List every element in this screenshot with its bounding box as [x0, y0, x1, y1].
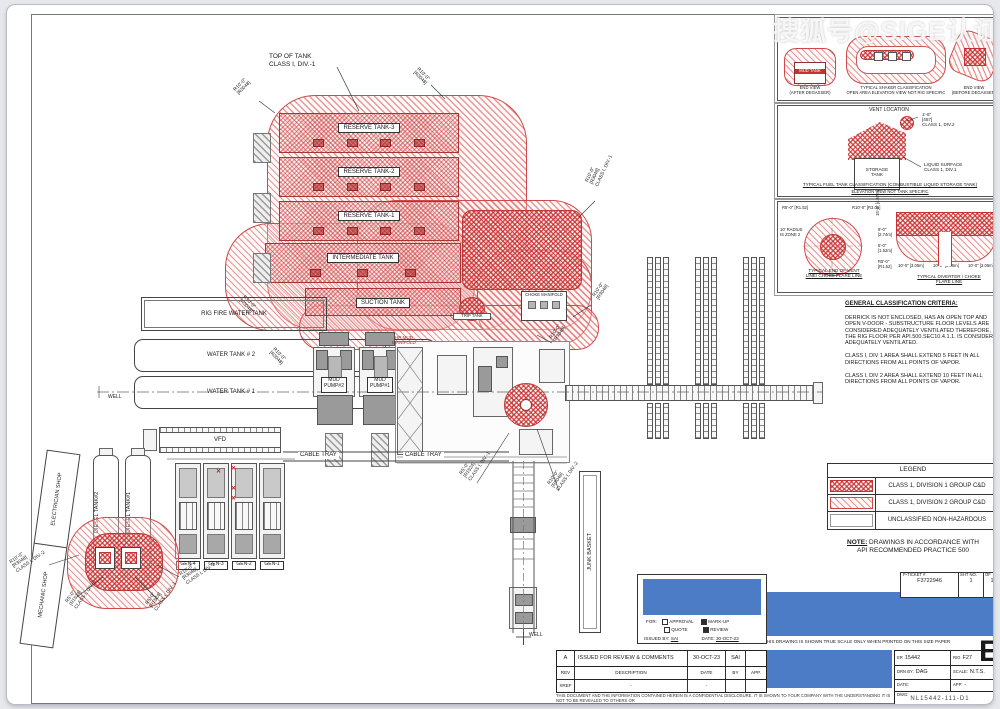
note-text: DRAWINGS IN ACCORDANCE WITH	[867, 539, 979, 546]
gen-part	[263, 468, 281, 498]
er-value: 15442	[905, 655, 920, 661]
well-centerline-label-left: WELL	[107, 395, 123, 401]
detail-panel-fuel-tank: VENT LOCATION STORAGE TANK 1'-6" [457] C…	[777, 105, 994, 197]
date-label: DATE:	[897, 683, 909, 688]
xref-app	[746, 680, 766, 692]
water-tank-2-label: WATER TANK # 2	[207, 352, 255, 359]
er-cell: ER 15442	[895, 651, 951, 665]
gen-part	[179, 468, 197, 498]
rev-letter: A	[557, 651, 575, 666]
catwalk-end	[813, 382, 823, 404]
substructure-part	[478, 366, 492, 392]
pipe-rack	[695, 257, 701, 385]
diverter-dim-15: 15'-0" [4.57m]	[876, 190, 881, 216]
water-tank-1-label: WATER TANK # 1	[207, 389, 255, 396]
tank-fitting	[347, 139, 358, 147]
drn-value: DAG	[916, 669, 928, 675]
pump-part	[362, 350, 374, 370]
stamp-date-value: 30-OCT-23	[716, 636, 739, 641]
vent-end-inner-circle	[820, 234, 846, 260]
drn-cell: DRN BY: DAG	[895, 666, 951, 679]
sheet-size-letter: E	[979, 635, 994, 669]
intermediate-tank: INTERMEDIATE TANK	[265, 243, 461, 283]
criteria-paragraph: CLASS I, DIV 1 AREA SHALL EXTEND 5 FEET …	[845, 353, 994, 366]
vfd-ticks	[160, 447, 280, 452]
stamp-date-label: DATE:	[702, 636, 715, 641]
gen-part	[263, 502, 281, 530]
app-value: -	[965, 682, 967, 688]
legend-label: UNCLASSIFIED NON-HAZARDOUS	[876, 512, 994, 529]
shaker-unit	[888, 52, 897, 61]
title-line: LINE/ CHOKE FLARE LINE	[786, 273, 882, 278]
vfd-label: VFD	[160, 437, 280, 444]
pipe-rack	[663, 403, 669, 439]
end-view-after-caption: END VIEW (AFTER DEGASSER)	[780, 86, 840, 95]
legend-swatch-none	[830, 514, 873, 527]
generator-3	[203, 463, 229, 559]
pipe-rack	[655, 403, 661, 439]
xref-by	[726, 680, 746, 692]
diesel-vent-box	[95, 547, 115, 569]
vfd-ticks	[160, 428, 280, 433]
tank-fitting	[347, 183, 358, 191]
title-line: FLARE LINE	[900, 279, 994, 284]
of-value: 1	[984, 578, 994, 584]
revision-table: A ISSUED FOR REVIEW & COMMENTS 30-OCT-23…	[556, 650, 767, 693]
markup-option-label: MARK-UP	[708, 619, 729, 624]
substructure-module	[539, 349, 565, 383]
shaker-right-inner	[964, 48, 986, 66]
criteria-paragraph: DERRICK IS NOT ENCLOSED, HAS AN OPEN TOP…	[845, 315, 994, 347]
pipe-rack	[751, 257, 757, 385]
pticket-value: F3722946	[901, 578, 958, 584]
legend-row-unclassified: UNCLASSIFIED NON-HAZARDOUS	[828, 512, 994, 529]
flare-marker-icon: ✕	[216, 469, 221, 475]
diverter-dim-10: 10'-0" [3.05m]	[898, 264, 924, 269]
diverter-title: TYPICAL DIVERTER / CHOKE FLARE LINE	[900, 274, 994, 284]
pipe-rack	[695, 403, 701, 439]
pipe-rack	[655, 257, 661, 385]
redacted-title-block	[764, 592, 994, 636]
sht-cell: SHT NO. 1	[959, 573, 984, 597]
approval-options-2: QUOTE REVIEW	[664, 627, 774, 633]
note-line2: API RECOMMENDED PRACTICE 500	[817, 547, 994, 555]
gen-part	[207, 534, 225, 554]
checkbox-quote	[664, 627, 670, 633]
pump-part	[316, 350, 328, 370]
rig-label: RIG	[953, 656, 960, 661]
mud-pump-1-skid	[363, 395, 399, 425]
mud-tank-box: MUD TANK	[794, 62, 826, 84]
rev-header-by: BY	[726, 667, 746, 679]
substructure-module	[437, 355, 467, 395]
watermark: 搜狐号@SIGE认证 /M	[773, 11, 994, 48]
cable-tray-label: CABLE TRAY	[298, 452, 339, 459]
diesel-vent-hatch	[125, 552, 137, 564]
gen-part	[235, 502, 253, 530]
hazard-zone-div1-rigfloor	[462, 210, 582, 290]
dim-line: [1.52m]	[878, 249, 892, 254]
reserve-tank-3-label: RESERVE TANK-3	[338, 123, 399, 133]
gen-part	[207, 502, 225, 530]
diverter-dim-5: 5'-0"[1.52m]	[878, 244, 892, 253]
issued-by-value: SAI	[671, 636, 678, 641]
reserve-tank-1-label: RESERVE TANK-1	[338, 211, 399, 221]
caption-line: (BEFORE DEGASSER)	[946, 91, 994, 96]
mud-tank-label: MUD TANK	[795, 69, 825, 74]
mechanic-shop-label: MECHANIC SHOP	[37, 571, 50, 618]
caption-line: OPEN AREA ELEVATION VIEW NOT RIG SPECIFI…	[840, 91, 952, 96]
well-centerline-label-bottom: WELL	[529, 633, 543, 639]
vent-end-title: TYPICAL END OF VENT LINE/ CHOKE FLARE LI…	[786, 268, 882, 278]
tank-fitting	[380, 227, 391, 235]
quote-option-label: QUOTE	[671, 627, 687, 632]
er-label: ER	[897, 656, 903, 661]
gen-part	[235, 534, 253, 554]
flare-marker-icon: ✕	[231, 496, 236, 502]
criteria-heading: GENERAL CLASSIFICATION CRITERIA:	[845, 301, 994, 308]
diverter-dim-9: 9'-0"[2.74m]	[878, 228, 892, 237]
diverter-dim-10: 10'-0" [3.05m]	[968, 264, 994, 269]
pipe-rack	[711, 403, 717, 439]
date-cell: DATE:	[895, 680, 951, 691]
redacted-logo-block	[643, 579, 761, 615]
rev-row-3: XREF - -	[557, 680, 766, 692]
tank-stair	[253, 133, 271, 163]
pipe-rack	[759, 403, 765, 439]
rig-fire-water-tank-inner: RIG FIRE WATER TANK	[144, 300, 324, 328]
legend-swatch-cell	[828, 495, 876, 511]
legend-row-div1: CLASS 1, DIVISION 1 GROUP C&D	[828, 478, 994, 495]
substructure-module	[519, 429, 553, 455]
junk-basket-label: JUNK BASKET	[587, 533, 593, 571]
skid-part	[515, 594, 533, 606]
tank-fitting	[313, 139, 324, 147]
choke-manifold: CHOKE MANIFOLD	[521, 291, 567, 321]
cable-tray-label: CABLE TRAY	[403, 452, 444, 459]
generator-1	[259, 463, 285, 559]
checkbox-markup	[701, 619, 707, 625]
mud-pump-2-skid	[317, 395, 353, 425]
legend-swatch-div1	[830, 480, 873, 492]
rev-description: ISSUED FOR REVIEW & COMMENTS	[575, 651, 688, 666]
pipe-rack	[743, 403, 749, 439]
pticket-box: P-TICKET # F3722946 SHT NO. 1 OF 1	[900, 572, 994, 598]
pump-label-line: PUMP#1	[368, 384, 392, 390]
rev-row-2: REV DESCRIPTION DATE BY APP.	[557, 667, 766, 680]
pipe-rack	[711, 257, 717, 385]
approval-stamp: FOR: APPROVAL MARK-UP QUOTE REVIEW ISSUE…	[637, 574, 767, 644]
legend-label: CLASS 1, DIVISION 1 GROUP C&D	[876, 478, 994, 494]
rev-by: SAI	[726, 651, 746, 666]
manifold-valve	[552, 301, 560, 309]
tank-fitting	[414, 139, 425, 147]
choke-manifold-label: CHOKE MANIFOLD	[522, 293, 566, 298]
mud-pump-1-pedestal	[371, 433, 389, 467]
xref-date: -	[688, 680, 726, 692]
rig-fire-water-tank-label: RIG FIRE WATER TANK	[201, 311, 267, 318]
wellhead-skid	[509, 587, 537, 629]
checkbox-review	[703, 627, 709, 633]
checkbox-approval	[662, 619, 668, 625]
rev-row-1: A ISSUED FOR REVIEW & COMMENTS 30-OCT-23…	[557, 651, 766, 667]
pipe-rack	[703, 403, 709, 439]
manifold-valve	[528, 301, 536, 309]
note-label: NOTE:	[847, 539, 867, 546]
fuel-detail-title: TYPICAL FUEL TANK CLASSIFICATION (COMBUS…	[780, 182, 994, 187]
pipe-rack	[663, 257, 669, 385]
issued-by-label: ISSUED BY:	[644, 636, 670, 641]
fuel-detail-subtitle: ELEVATION VIEW NOT TANK SPECIFIC	[780, 190, 994, 195]
redacted-company-block	[762, 650, 892, 688]
review-option-label: REVIEW	[710, 627, 728, 632]
vent-dim-label: 1'-6" [457] CLASS 1, DIV.2	[922, 112, 955, 127]
rig-fire-water-tank: RIG FIRE WATER TANK	[141, 297, 327, 331]
sht-value: 1	[959, 578, 983, 584]
flare-marker-icon: ✕	[231, 466, 236, 472]
tank-fitting	[380, 183, 391, 191]
suction-tank-label: SUCTION TANK	[356, 298, 410, 308]
liquid-surface-label: LIQUID SURFACE CLASS 1, DIV.1	[924, 162, 962, 172]
dwg-number: NL15442-111-D1	[910, 696, 969, 705]
diesel-vent-box	[121, 547, 141, 569]
flare-marker-icon: ✕	[231, 486, 236, 492]
pipe-rack	[647, 403, 653, 439]
tank-fitting	[357, 269, 368, 277]
gen-part	[235, 468, 253, 498]
legend-swatch-cell	[828, 512, 876, 529]
legend-note: NOTE: DRAWINGS IN ACCORDANCE WITH API RE…	[817, 539, 994, 555]
diesel-vent-hatch	[99, 552, 111, 564]
dim-line: CLASS 1, DIV.2	[922, 122, 955, 127]
shaker-unit	[902, 52, 911, 61]
tank-fitting	[414, 227, 425, 235]
for-label: FOR:	[646, 619, 657, 624]
legend-swatch-div2	[830, 497, 873, 509]
info-row-3: DATE: APP: -	[895, 680, 994, 692]
skid-part	[515, 612, 533, 624]
substructure-leg	[397, 347, 423, 455]
vfd-house: VFD	[159, 427, 281, 453]
of-cell: OF 1	[984, 573, 994, 597]
true-scale-note: THIS DRAWING IS SHOWN TRUE SCALE ONLY WH…	[764, 639, 994, 644]
app-label: APP:	[953, 683, 963, 688]
pipe-rack	[703, 257, 709, 385]
reserve-tank-3: RESERVE TANK-3	[279, 113, 459, 153]
approval-option-label: APPROVAL	[669, 619, 693, 624]
shaker-unit	[874, 52, 883, 61]
zone-line: IS ZONE 2	[780, 233, 806, 238]
rev-header-app: APP.	[746, 667, 766, 679]
diverter-pipe	[938, 232, 952, 266]
scale-value: N.T.S.	[970, 669, 985, 675]
fuel-vent-circle	[900, 116, 914, 130]
trip-tank-label: TRIP TANK	[453, 313, 491, 320]
legend-row-div2: CLASS 1, DIVISION 2 GROUP C&D	[828, 495, 994, 512]
dim-line: [R1.52]	[878, 265, 892, 270]
legend-label: CLASS 1, DIVISION 2 GROUP C&D	[876, 495, 994, 511]
diverter-dim-r5: R5'-0"[R1.52]	[878, 260, 892, 269]
mud-pump-2-label: MUD PUMP#2	[321, 377, 347, 393]
approval-options: FOR: APPROVAL MARK-UP	[646, 619, 762, 625]
vent-location-label: VENT LOCATION	[778, 108, 994, 114]
legend-title: LEGEND	[828, 464, 994, 478]
reserve-tank-1: RESERVE TANK-1	[279, 201, 459, 241]
generator-4	[175, 463, 201, 559]
gen-part	[263, 534, 281, 554]
pipe-rack	[751, 403, 757, 439]
tank-stair	[253, 253, 271, 283]
tank-fitting	[313, 183, 324, 191]
catwalk	[565, 385, 819, 401]
shaker-mid-caption: TYPICAL SHAKER CLASSIFICATION OPEN AREA …	[840, 86, 952, 95]
callout-line: CLASS I, DIV.-1	[269, 61, 315, 69]
scale-label: SCALE:	[953, 670, 968, 675]
callout-line: TOP OF TANK	[269, 53, 315, 61]
detail-panel-flare: R5'-0" [R1.52] R10'-0" [R3.05] 10' RADIU…	[777, 201, 994, 293]
electrician-shop-label: ELECTRICIAN SHOP	[50, 472, 64, 526]
rev-app	[746, 651, 766, 666]
flare-r5-label: R5'-0" [R1.52]	[782, 206, 808, 211]
xref-label: XREF	[557, 680, 575, 692]
tank-fitting	[414, 183, 425, 191]
reserve-tank-2-label: RESERVE TANK-2	[338, 167, 399, 177]
pipe-rack	[743, 257, 749, 385]
mud-pump-2-top	[319, 332, 349, 346]
pticket-cell: P-TICKET # F3722946	[901, 573, 959, 597]
gen-part	[179, 502, 197, 530]
legend-swatch-cell	[828, 478, 876, 494]
vfd-attachment	[143, 429, 157, 451]
gen-part	[179, 534, 197, 554]
pipe-rack	[647, 257, 653, 385]
app-cell: APP: -	[951, 680, 994, 691]
junk-basket-inner: JUNK BASKET	[583, 475, 597, 629]
rig-value: F27	[962, 655, 971, 661]
drn-label: DRN BY:	[897, 670, 914, 675]
xref-value: -	[575, 680, 688, 692]
storage-line: TANK	[855, 172, 899, 177]
gen-1-label: GEN-1	[260, 561, 284, 570]
legend: LEGEND CLASS 1, DIVISION 1 GROUP C&D CLA…	[827, 463, 994, 530]
generator-2	[231, 463, 257, 559]
rev-header-date: DATE	[688, 667, 726, 679]
tank-fitting	[380, 139, 391, 147]
criteria-paragraph: CLASS I, DIV 2 AREA SHALL EXTEND 10 FEET…	[845, 373, 994, 386]
hp-mud-manifold-label: HP MUD MANIFOLD	[383, 335, 425, 345]
mud-pump-2-pedestal	[325, 433, 343, 467]
top-of-tank-callout: TOP OF TANK CLASS I, DIV.-1	[269, 53, 315, 69]
pipe-rack	[759, 257, 765, 385]
drawing-sheet: RESERVE TANK-3 RESERVE TANK-2 RESERVE TA…	[6, 4, 994, 705]
junk-basket: JUNK BASKET	[579, 471, 601, 633]
hp-mud-line: MANIFOLD	[383, 340, 425, 345]
reserve-tank-2: RESERVE TANK-2	[279, 157, 459, 197]
info-row-4: DWG: NL15442-111-D1	[895, 692, 994, 705]
mud-pump-1-label: MUD PUMP#1	[367, 377, 393, 393]
fuel-vapor-roof	[848, 122, 906, 160]
tank-fitting	[405, 269, 416, 277]
tank-fitting	[313, 227, 324, 235]
confidentiality-note: THIS DOCUMENT AND THE INFORMATION CONTAI…	[556, 694, 898, 703]
tank-fitting	[310, 269, 321, 277]
classification-criteria: GENERAL CLASSIFICATION CRITERIA: DERRICK…	[845, 301, 994, 386]
rev-header-rev: REV	[557, 667, 575, 679]
rev-date: 30-OCT-23	[688, 651, 726, 666]
tank-fitting	[347, 227, 358, 235]
manifold-valve	[540, 301, 548, 309]
intermediate-tank-label: INTERMEDIATE TANK	[327, 253, 398, 263]
end-view-before-caption: END VIEW (BEFORE DEGASSER)	[946, 86, 994, 95]
dim-line: [2.74m]	[878, 233, 892, 238]
caption-line: (AFTER DEGASSER)	[780, 91, 840, 96]
issued-by-row: ISSUED BY: SAI DATE: 30-OCT-23	[644, 636, 764, 641]
zone2-label: 10' RADIUS IS ZONE 2	[780, 228, 806, 237]
tank-stair	[253, 193, 271, 223]
rev-header-description: DESCRIPTION	[575, 667, 688, 679]
substructure-part	[496, 356, 508, 368]
pump-label-line: PUMP#2	[322, 384, 346, 390]
dim-line: CLASS 1, DIV.1	[924, 167, 962, 172]
suction-tank: SUCTION TANK	[305, 288, 461, 316]
gen-2-label: GEN-2	[232, 561, 256, 570]
bop-carrier	[510, 517, 536, 533]
dwg-label: DWG:	[897, 693, 908, 705]
well-center	[520, 399, 532, 411]
